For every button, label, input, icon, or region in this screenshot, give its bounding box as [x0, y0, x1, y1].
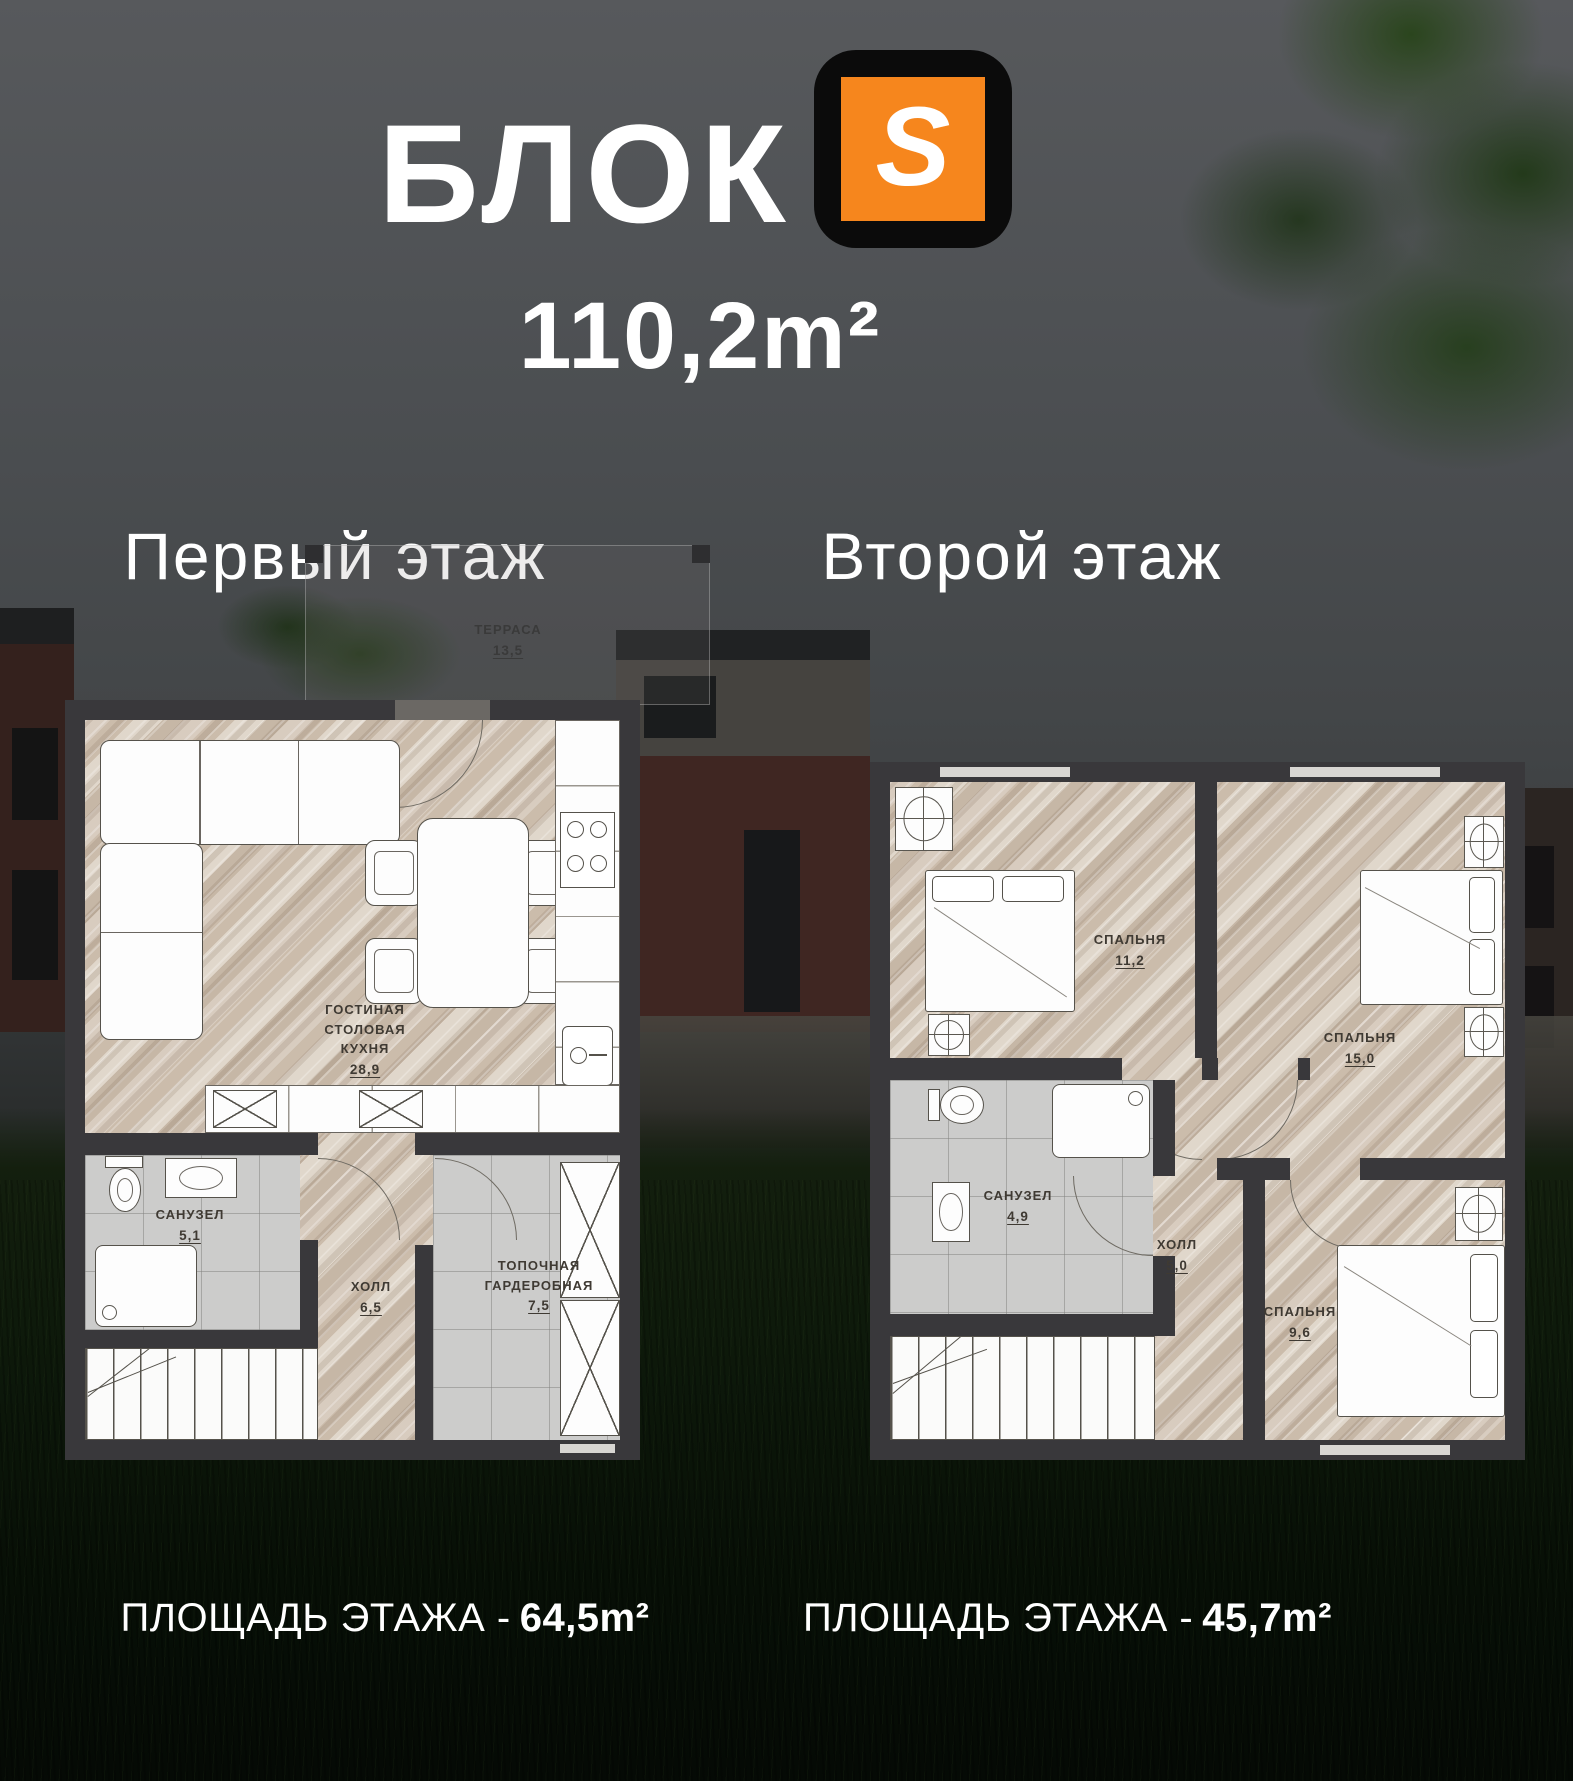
stair-winder-line — [893, 1336, 970, 1394]
room-area: 9,6 — [1289, 1323, 1311, 1343]
stove-burner — [567, 821, 584, 838]
room-name: ХОЛЛ — [311, 1277, 431, 1297]
block-s-logo: S — [814, 50, 1012, 248]
bathroom-sink — [165, 1158, 237, 1198]
room-area: 15,0 — [1345, 1049, 1375, 1069]
window — [1320, 1445, 1450, 1455]
interior-wall — [415, 1133, 620, 1155]
terrace-post — [305, 545, 323, 563]
floor2-plan: СПАЛЬНЯ 11,2 СПАЛЬНЯ 15,0 САНУЗЕЛ 4,9 ХО… — [870, 762, 1525, 1460]
building-roof — [0, 608, 74, 644]
ceiling-fan-icon — [1455, 1187, 1503, 1241]
stove-burner — [567, 855, 584, 872]
toilet — [928, 1089, 940, 1121]
room-name: СПАЛЬНЯ — [1285, 1028, 1435, 1048]
room-name: САНУЗЕЛ — [958, 1186, 1078, 1206]
building-brick-wall — [616, 756, 870, 1032]
interior-wall — [1202, 1058, 1218, 1080]
room-bathroom-label: САНУЗЕЛ 4,9 — [958, 1186, 1078, 1227]
kitchen-sink — [562, 1026, 613, 1086]
appliance-unit — [359, 1090, 423, 1128]
pillow — [1002, 876, 1064, 902]
stair-winder-line — [88, 1348, 164, 1397]
room-bathroom-label: САНУЗЕЛ 5,1 — [110, 1205, 270, 1246]
dining-chair — [365, 840, 423, 906]
room-terrace-label: ТЕРРАСА 13,5 — [428, 620, 588, 661]
ceiling-fan-icon — [895, 787, 953, 851]
room-name: САНУЗЕЛ — [110, 1205, 270, 1225]
interior-wall — [85, 1330, 318, 1348]
caption-area-value: 64,5m² — [520, 1596, 650, 1640]
shower-drain — [1128, 1091, 1143, 1106]
ceiling-fan-icon — [1464, 816, 1504, 868]
pillow — [1469, 939, 1495, 995]
appliance-unit — [213, 1090, 277, 1128]
window — [1290, 767, 1440, 777]
stove-burner — [590, 821, 607, 838]
bed — [1360, 870, 1503, 1005]
sofa — [100, 843, 203, 1040]
sofa — [100, 740, 400, 845]
ceiling-fan-icon — [928, 1014, 970, 1056]
room-name: ТОПОЧНАЯ ГАРДЕРОБНАЯ — [473, 1256, 605, 1295]
interior-wall — [1360, 1158, 1505, 1180]
floor2-heading: Второй этаж — [792, 518, 1252, 594]
interior-wall — [415, 1245, 433, 1440]
building-window — [12, 728, 58, 820]
window — [940, 767, 1070, 777]
stairs — [890, 1336, 1155, 1440]
tree-foliage-right — [1030, 0, 1573, 510]
room-hall-label: ХОЛЛ 6,5 — [311, 1277, 431, 1318]
terrace-post — [692, 545, 710, 563]
floor1-area-caption: ПЛОЩАДЬ ЭТАЖА -64,5m² — [110, 1596, 660, 1641]
interior-wall — [890, 1314, 1175, 1336]
dining-table — [417, 818, 529, 1008]
room-name: ХОЛЛ — [1117, 1235, 1237, 1255]
entrance-opening — [395, 700, 490, 720]
stove-burner — [590, 855, 607, 872]
room-name: ГОСТИНАЯ СТОЛОВАЯ КУХНЯ — [315, 1000, 415, 1059]
stove — [560, 812, 615, 888]
room-area: 28,9 — [350, 1060, 380, 1080]
room-bedroom3-label: СПАЛЬНЯ 9,6 — [1230, 1302, 1370, 1343]
room-area: 5,1 — [179, 1226, 201, 1246]
window — [560, 1444, 615, 1453]
interior-wall — [85, 1133, 318, 1155]
interior-wall — [1153, 1080, 1175, 1176]
room-area: 13,5 — [493, 641, 523, 661]
room-area: 5,0 — [1166, 1256, 1188, 1276]
dining-chair — [365, 938, 423, 1004]
floor2-area-caption: ПЛОЩАДЬ ЭТАЖА -45,7m² — [790, 1596, 1345, 1641]
shower — [1052, 1084, 1150, 1158]
room-name: СПАЛЬНЯ — [1050, 930, 1210, 950]
room-name: ТЕРРАСА — [428, 620, 588, 640]
floor1-plan: ГОСТИНАЯ СТОЛОВАЯ КУХНЯ 28,9 САНУЗЕЛ 5,1… — [65, 700, 640, 1460]
room-boiler-label: ТОПОЧНАЯ ГАРДЕРОБНАЯ 7,5 — [473, 1256, 605, 1316]
pillow — [1470, 1330, 1498, 1398]
pillow — [932, 876, 994, 902]
room-living-label: ГОСТИНАЯ СТОЛОВАЯ КУХНЯ 28,9 — [315, 1000, 415, 1080]
total-area-value: 110,2m² — [420, 282, 980, 391]
background-building-left — [0, 608, 74, 1032]
stairs — [85, 1348, 318, 1440]
pillow — [1469, 877, 1495, 933]
blanket-fold-line — [934, 907, 1067, 998]
poster-canvas: БЛОК S 110,2m² Первый этаж Второй этаж Т… — [0, 0, 1573, 1781]
building-window — [12, 870, 58, 980]
caption-label: ПЛОЩАДЬ ЭТАЖА - — [803, 1596, 1193, 1640]
interior-wall — [1195, 782, 1217, 1058]
room-bedroom2-label: СПАЛЬНЯ 15,0 — [1285, 1028, 1435, 1069]
room-name: СПАЛЬНЯ — [1230, 1302, 1370, 1322]
building-door — [744, 830, 800, 1012]
shower-drain — [102, 1305, 117, 1320]
room-area: 7,5 — [528, 1296, 550, 1316]
interior-wall — [1217, 1158, 1290, 1180]
room-hall-label: ХОЛЛ 5,0 — [1117, 1235, 1237, 1276]
ceiling-fan-icon — [1464, 1007, 1504, 1057]
toilet — [940, 1086, 984, 1124]
page-title: БЛОК — [370, 100, 800, 247]
room-area: 11,2 — [1115, 951, 1145, 971]
shower — [95, 1245, 197, 1327]
room-area: 6,5 — [360, 1298, 382, 1318]
toilet — [105, 1156, 143, 1168]
room-area: 4,9 — [1007, 1207, 1029, 1227]
caption-label: ПЛОЩАДЬ ЭТАЖА - — [121, 1596, 511, 1640]
room-bedroom1-label: СПАЛЬНЯ 11,2 — [1050, 930, 1210, 971]
caption-area-value: 45,7m² — [1202, 1596, 1332, 1640]
blanket-fold-line — [1365, 887, 1480, 949]
pillow — [1470, 1254, 1498, 1322]
wardrobe-unit — [560, 1300, 620, 1436]
interior-wall — [890, 1058, 1122, 1080]
terrace-outline: ТЕРРАСА 13,5 — [305, 545, 710, 705]
logo-letter: S — [841, 77, 985, 221]
